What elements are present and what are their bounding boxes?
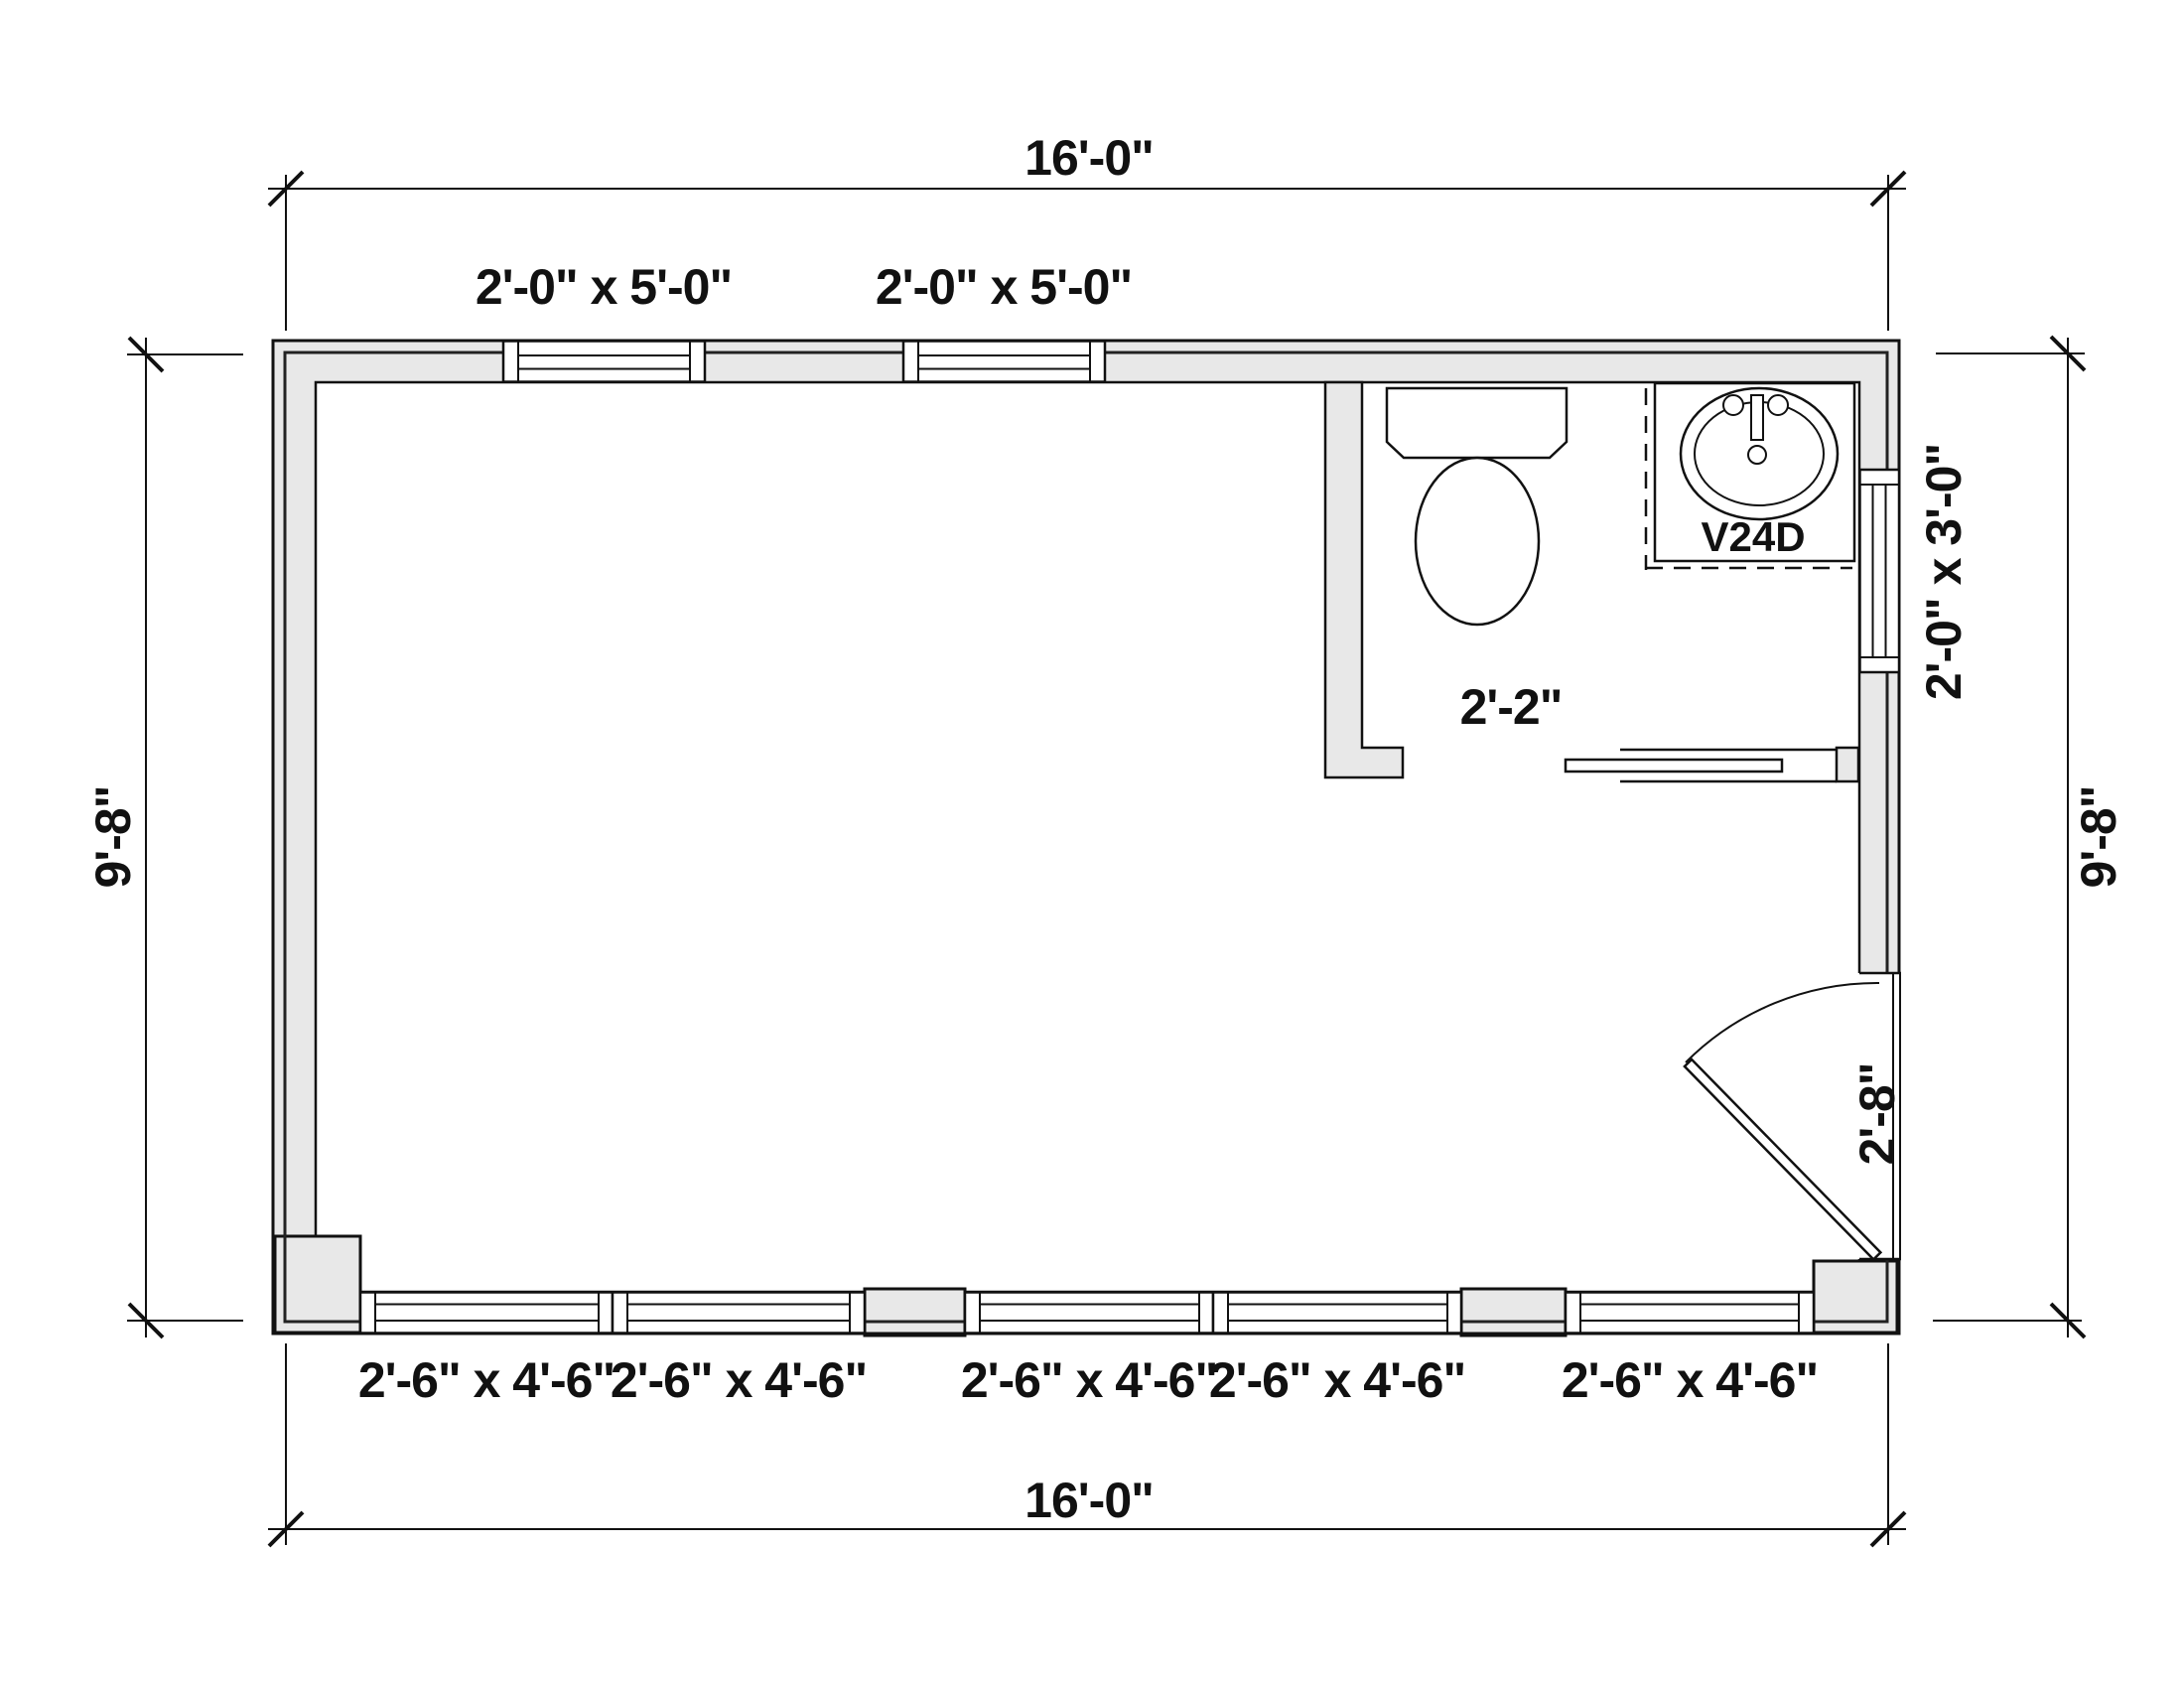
- bottom-windows: [360, 1293, 1814, 1334]
- bathroom-door: [1566, 748, 1858, 781]
- sink: [1681, 388, 1838, 519]
- toilet-tank: [1387, 388, 1567, 458]
- entry-door-swing-arc: [1686, 983, 1879, 1062]
- left-dimension: [127, 338, 243, 1337]
- window-bottom-3: [965, 1293, 1213, 1334]
- sink-faucet-handle-right: [1768, 395, 1788, 415]
- bath-opening-width-label: 2'-2": [1460, 682, 1563, 732]
- window-label-bottom-4: 2'-6" x 4'-6": [1209, 1355, 1465, 1405]
- floor-plan: 16'-0" 16'-0" 9'-8" 9'-8" 2'-0" x 5'-0" …: [0, 0, 2184, 1688]
- corner-block-bottom-left: [275, 1236, 360, 1333]
- entry-door-width-label: 2'-8": [1852, 1063, 1902, 1166]
- window-label-bottom-1: 2'-6" x 4'-6": [358, 1355, 614, 1405]
- wall-sheathing-line: [285, 352, 1887, 1322]
- toilet: [1387, 388, 1567, 625]
- sink-drain: [1748, 446, 1766, 464]
- window-label-bottom-3: 2'-6" x 4'-6": [961, 1355, 1217, 1405]
- vanity-model-label: V24D: [1701, 516, 1805, 558]
- dimension-label-top: 16'-0": [1024, 133, 1154, 183]
- wall-inner-face-line: [316, 382, 1859, 1292]
- window-label-top-1: 2'-0" x 5'-0": [476, 262, 732, 312]
- window-label-bottom-5: 2'-6" x 4'-6": [1562, 1355, 1818, 1405]
- wall-block-bottom-1: [865, 1289, 965, 1336]
- bathroom-door-jamb: [1837, 748, 1858, 781]
- window-bottom-5: [1566, 1293, 1814, 1334]
- window-label-bottom-2: 2'-6" x 4'-6": [611, 1355, 867, 1405]
- window-top-2: [903, 342, 1105, 382]
- sink-faucet-spout: [1751, 395, 1763, 440]
- window-right: [1860, 470, 1900, 672]
- dimension-label-bottom: 16'-0": [1024, 1476, 1154, 1525]
- sink-faucet-handle-left: [1723, 395, 1743, 415]
- dimension-label-right: 9'-8": [2074, 786, 2123, 889]
- toilet-bowl: [1416, 458, 1539, 625]
- floor-plan-linework: [0, 0, 2184, 1688]
- window-bottom-4: [1213, 1293, 1461, 1334]
- bathroom-door-slab: [1566, 760, 1782, 772]
- window-top-1: [503, 342, 705, 382]
- window-label-top-2: 2'-0" x 5'-0": [876, 262, 1132, 312]
- window-bottom-2: [613, 1293, 865, 1334]
- window-bottom-1: [360, 1293, 613, 1334]
- dimension-label-left: 9'-8": [88, 786, 138, 889]
- wall-block-bottom-2: [1461, 1289, 1566, 1336]
- window-label-right: 2'-0" x 3'-0": [1919, 444, 1969, 700]
